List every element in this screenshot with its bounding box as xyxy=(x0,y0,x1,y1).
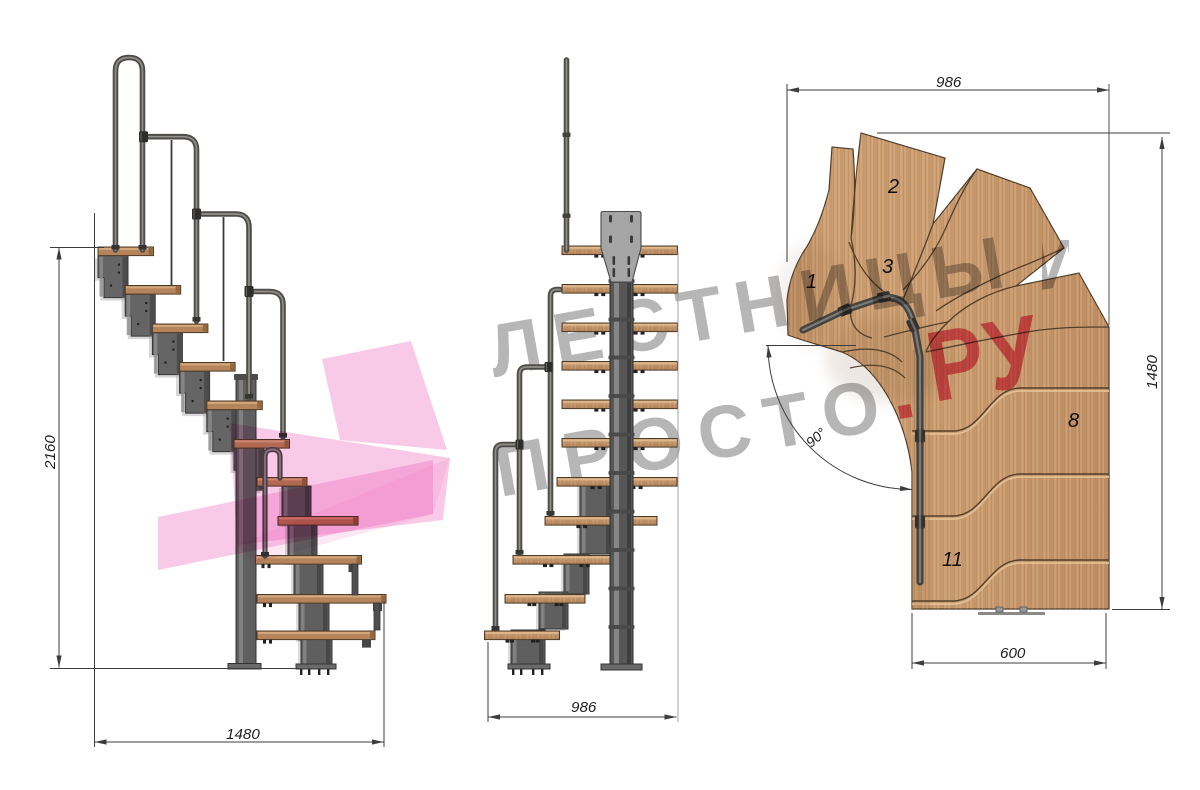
svg-text:1480: 1480 xyxy=(226,726,260,743)
svg-text:11: 11 xyxy=(942,549,963,571)
svg-text:2: 2 xyxy=(887,176,899,198)
svg-text:986: 986 xyxy=(571,699,597,716)
svg-text:986: 986 xyxy=(936,74,962,91)
svg-text:2160: 2160 xyxy=(42,435,59,470)
svg-text:1480: 1480 xyxy=(1144,355,1161,389)
svg-text:600: 600 xyxy=(1000,645,1026,662)
svg-text:8: 8 xyxy=(1068,410,1079,432)
svg-text:РУ: РУ xyxy=(918,293,1051,423)
